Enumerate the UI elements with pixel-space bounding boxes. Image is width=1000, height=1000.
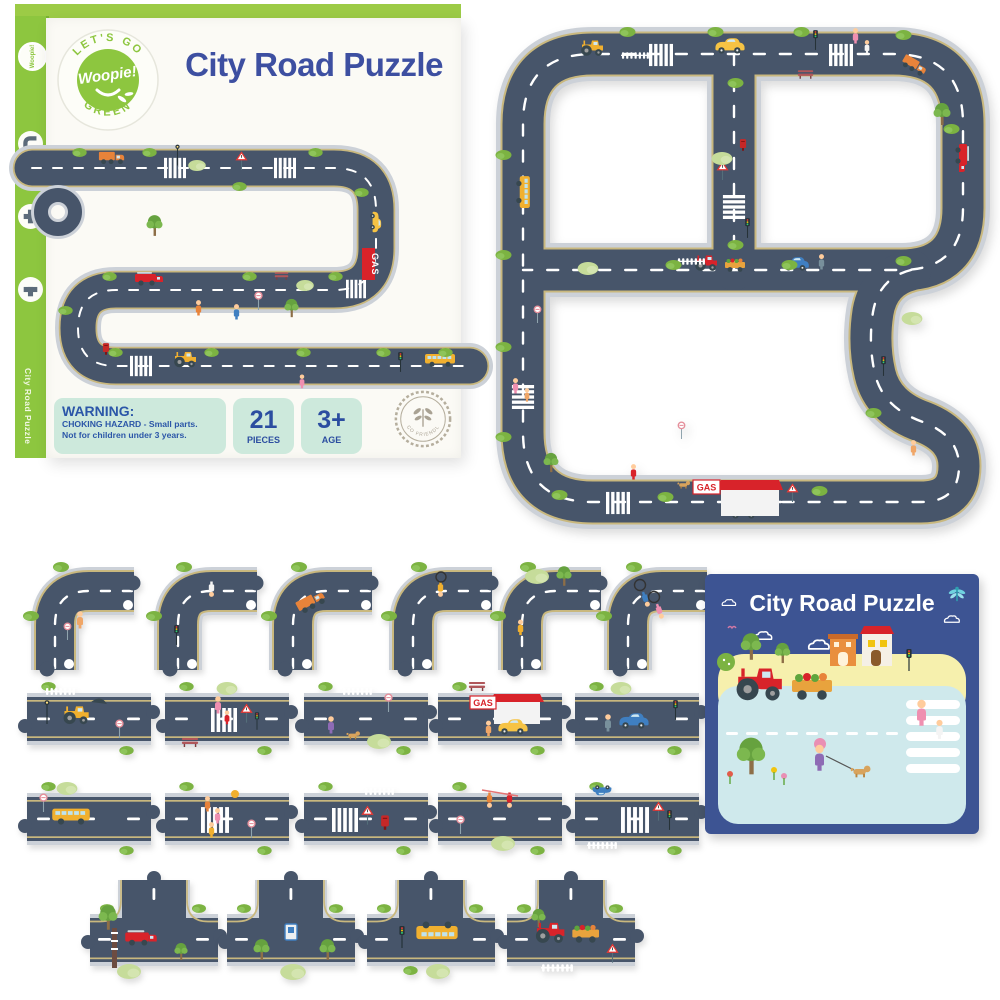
cloud-icon [941,614,963,624]
puzzle-piece [27,680,151,758]
puzzle-roads [523,54,963,502]
gas-sign-text: GAS [697,483,717,493]
product-box: Woopie! City Road Puzzle LET'S GO GREEN … [15,4,461,458]
puzzle-piece [27,780,151,858]
pieces-count-label: PIECES [247,435,280,445]
puzzle-piece [385,563,490,668]
spine-piece-icon [18,277,43,302]
puzzle-piece [575,780,699,858]
puzzle-piece [367,880,495,980]
age-badge: 3+ AGE [301,398,362,454]
spine-title: City Road Puzzle [23,368,33,444]
warning-heading: WARNING: [62,403,218,419]
booklet-title: City Road Puzzle [705,590,979,617]
puzzle-piece [265,563,370,668]
puzzle-piece [600,563,705,668]
eco-friendly-stamp: ECO FRIENDLY [392,388,454,450]
puzzle-piece [438,780,562,858]
pieces-count-badge: 21 PIECES [233,398,294,454]
puzzle-piece [165,780,289,858]
puzzle-piece [575,680,699,758]
puzzle-piece [304,780,428,858]
puzzle-piece [507,880,635,980]
box-title: City Road Puzzle [168,46,460,84]
brand-logo: LET'S GO GREEN Woopie! [56,28,160,132]
puzzle-piece [165,680,289,758]
puzzle-piece: GAS [438,680,562,758]
booklet-illustration [718,624,966,824]
puzzle-piece [150,563,255,668]
puzzle-piece [227,880,355,980]
age-value: 3+ [317,408,346,433]
puzzle-piece [27,563,132,668]
cloud-icon [719,598,739,607]
puzzle-piece [304,680,428,758]
box-road-artwork: GAS [46,130,461,392]
road-dashes [726,732,898,735]
puzzle-piece [494,563,599,668]
dragonfly-icon [948,586,966,603]
product-photo: Woopie! City Road Puzzle LET'S GO GREEN … [0,0,1000,1000]
box-front: LET'S GO GREEN Woopie! City Road Puzzle [46,18,461,458]
warning-box: WARNING: CHOKING HAZARD - Small parts. N… [54,398,226,454]
gas-sign-text: GAS [370,253,380,276]
spine-brand-logo: Woopie! [18,42,47,71]
assembled-puzzle: GAS [481,12,995,542]
instruction-card: City Road Puzzle [705,574,979,834]
pieces-count-value: 21 [250,408,278,433]
age-label: AGE [322,435,342,445]
bird-icon [728,627,736,629]
warning-line1: CHOKING HAZARD - Small parts. [62,419,218,430]
puzzle-piece [90,880,218,980]
gas-sign-text: GAS [473,698,493,708]
box-spine: Woopie! City Road Puzzle [15,16,49,458]
warning-line2: Not for children under 3 years. [62,430,218,441]
